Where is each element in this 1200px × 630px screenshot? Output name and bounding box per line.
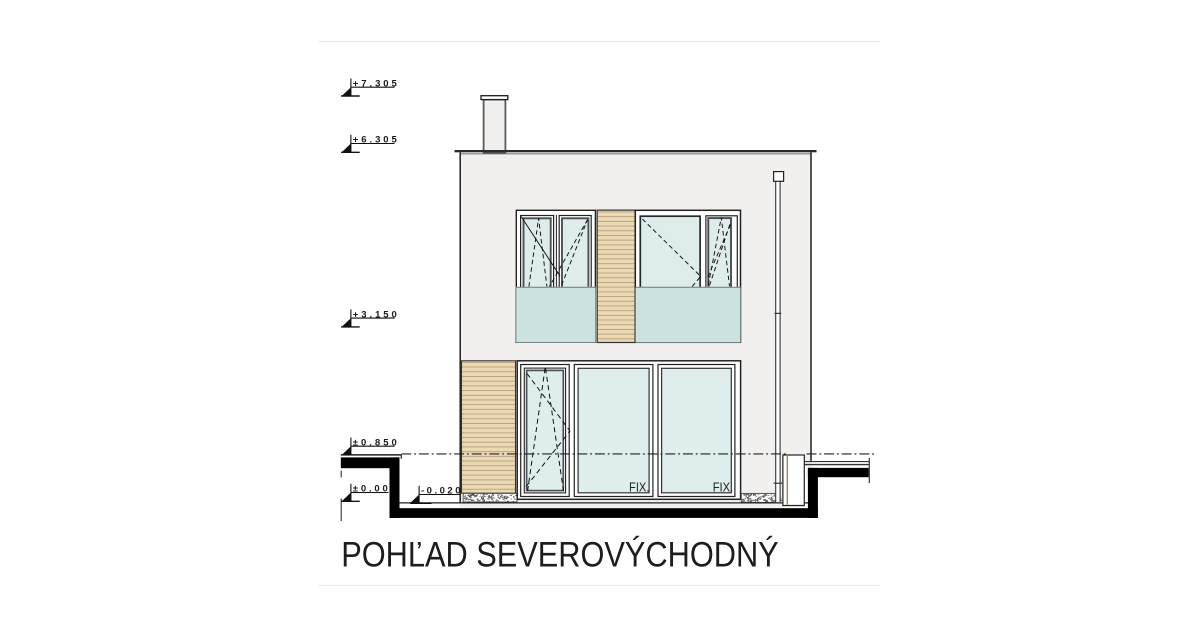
svg-text:FIX.: FIX. [713, 480, 734, 495]
svg-text:±0.00: ±0.00 [353, 484, 388, 495]
svg-text:+7.305: +7.305 [353, 78, 398, 89]
svg-text:-0.020: -0.020 [421, 486, 461, 497]
svg-text:FIX.: FIX. [629, 480, 650, 495]
svg-text:POHĽAD SEVEROVÝCHODNÝ: POHĽAD SEVEROVÝCHODNÝ [341, 535, 779, 575]
